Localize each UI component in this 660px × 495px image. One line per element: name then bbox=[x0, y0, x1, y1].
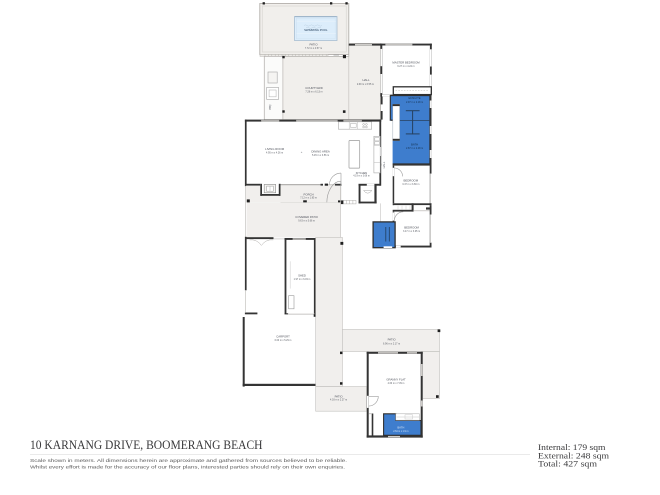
svg-text:9.63 m x 5.66 m: 9.63 m x 5.66 m bbox=[298, 220, 315, 222]
svg-text:CARPORT: CARPORT bbox=[276, 335, 290, 339]
svg-text:PATIO: PATIO bbox=[388, 338, 397, 342]
svg-text:6.27 m x 4.22 m: 6.27 m x 4.22 m bbox=[397, 65, 414, 68]
svg-text:7.12 m x 1.85 m: 7.12 m x 1.85 m bbox=[300, 198, 317, 200]
svg-text:2.97 m x 2.18 m: 2.97 m x 2.18 m bbox=[406, 101, 423, 104]
svg-text:DINING AREA: DINING AREA bbox=[311, 149, 329, 153]
svg-text:COVERED PATIO: COVERED PATIO bbox=[295, 215, 318, 219]
svg-text:3.47 m x 3.66 m: 3.47 m x 3.66 m bbox=[402, 183, 419, 186]
svg-text:BBQ: BBQ bbox=[270, 104, 272, 109]
svg-text:LIVING ROOM: LIVING ROOM bbox=[265, 147, 285, 151]
svg-text:10 KARNANG DRIVE, BOOMERANG BE: 10 KARNANG DRIVE, BOOMERANG BEACH bbox=[30, 438, 263, 452]
svg-text:4.03 m x 2.27 m: 4.03 m x 2.27 m bbox=[330, 399, 347, 402]
svg-text:SWIMMING POOL: SWIMMING POOL bbox=[304, 28, 328, 32]
svg-text:2.69 m x 6.55 m: 2.69 m x 6.55 m bbox=[357, 83, 374, 86]
svg-text:7.28 m x 6.13 m: 7.28 m x 6.13 m bbox=[305, 90, 322, 93]
svg-text:KITCHEN: KITCHEN bbox=[356, 171, 368, 175]
svg-text:Total: 427 sqm: Total: 427 sqm bbox=[538, 459, 597, 469]
svg-text:1.97 m x 6.03 m: 1.97 m x 6.03 m bbox=[294, 279, 311, 281]
svg-text:MASTER BEDROOM: MASTER BEDROOM bbox=[392, 61, 420, 65]
svg-text:HALL: HALL bbox=[363, 78, 370, 82]
svg-text:4.19 m x 3.66 m: 4.19 m x 3.66 m bbox=[353, 176, 370, 178]
svg-text:4.63 m x 7.39 m: 4.63 m x 7.39 m bbox=[388, 383, 405, 385]
svg-text:BATH: BATH bbox=[397, 425, 404, 429]
svg-text:HALL: HALL bbox=[382, 161, 386, 168]
svg-text:6.03 m x 5.29 m: 6.03 m x 5.29 m bbox=[275, 340, 292, 342]
svg-text:2.87 m x 2.48 m: 2.87 m x 2.48 m bbox=[406, 147, 423, 150]
svg-text:Whilst every effort is made fo: Whilst every effort is made for the accu… bbox=[30, 465, 345, 471]
svg-text:BEDROOM: BEDROOM bbox=[403, 179, 418, 183]
svg-text:Scale shown in meters. All dim: Scale shown in meters. All dimensions he… bbox=[30, 458, 347, 464]
svg-text:COURTYARD: COURTYARD bbox=[305, 86, 322, 90]
svg-text:4.95 m x 4.26 m: 4.95 m x 4.26 m bbox=[266, 151, 283, 154]
svg-text:6.96 m x 2.17 m: 6.96 m x 2.17 m bbox=[383, 342, 400, 345]
svg-text:GRANNY FLAT: GRANNY FLAT bbox=[386, 377, 406, 381]
svg-text:PORCH: PORCH bbox=[304, 192, 314, 196]
svg-text:BATH: BATH bbox=[411, 142, 418, 146]
svg-text:BEDROOM: BEDROOM bbox=[404, 226, 419, 230]
svg-text:3.47 m x 3.05 m: 3.47 m x 3.05 m bbox=[403, 230, 420, 233]
svg-text:2.64 m x 1.9 m: 2.64 m x 1.9 m bbox=[393, 431, 408, 433]
svg-text:ENSUITE: ENSUITE bbox=[409, 96, 421, 100]
svg-text:SHED: SHED bbox=[298, 274, 306, 278]
svg-text:7.72 m x 4.57 m: 7.72 m x 4.57 m bbox=[305, 47, 322, 50]
svg-text:5.45 m x 3.56 m: 5.45 m x 3.56 m bbox=[312, 154, 329, 157]
